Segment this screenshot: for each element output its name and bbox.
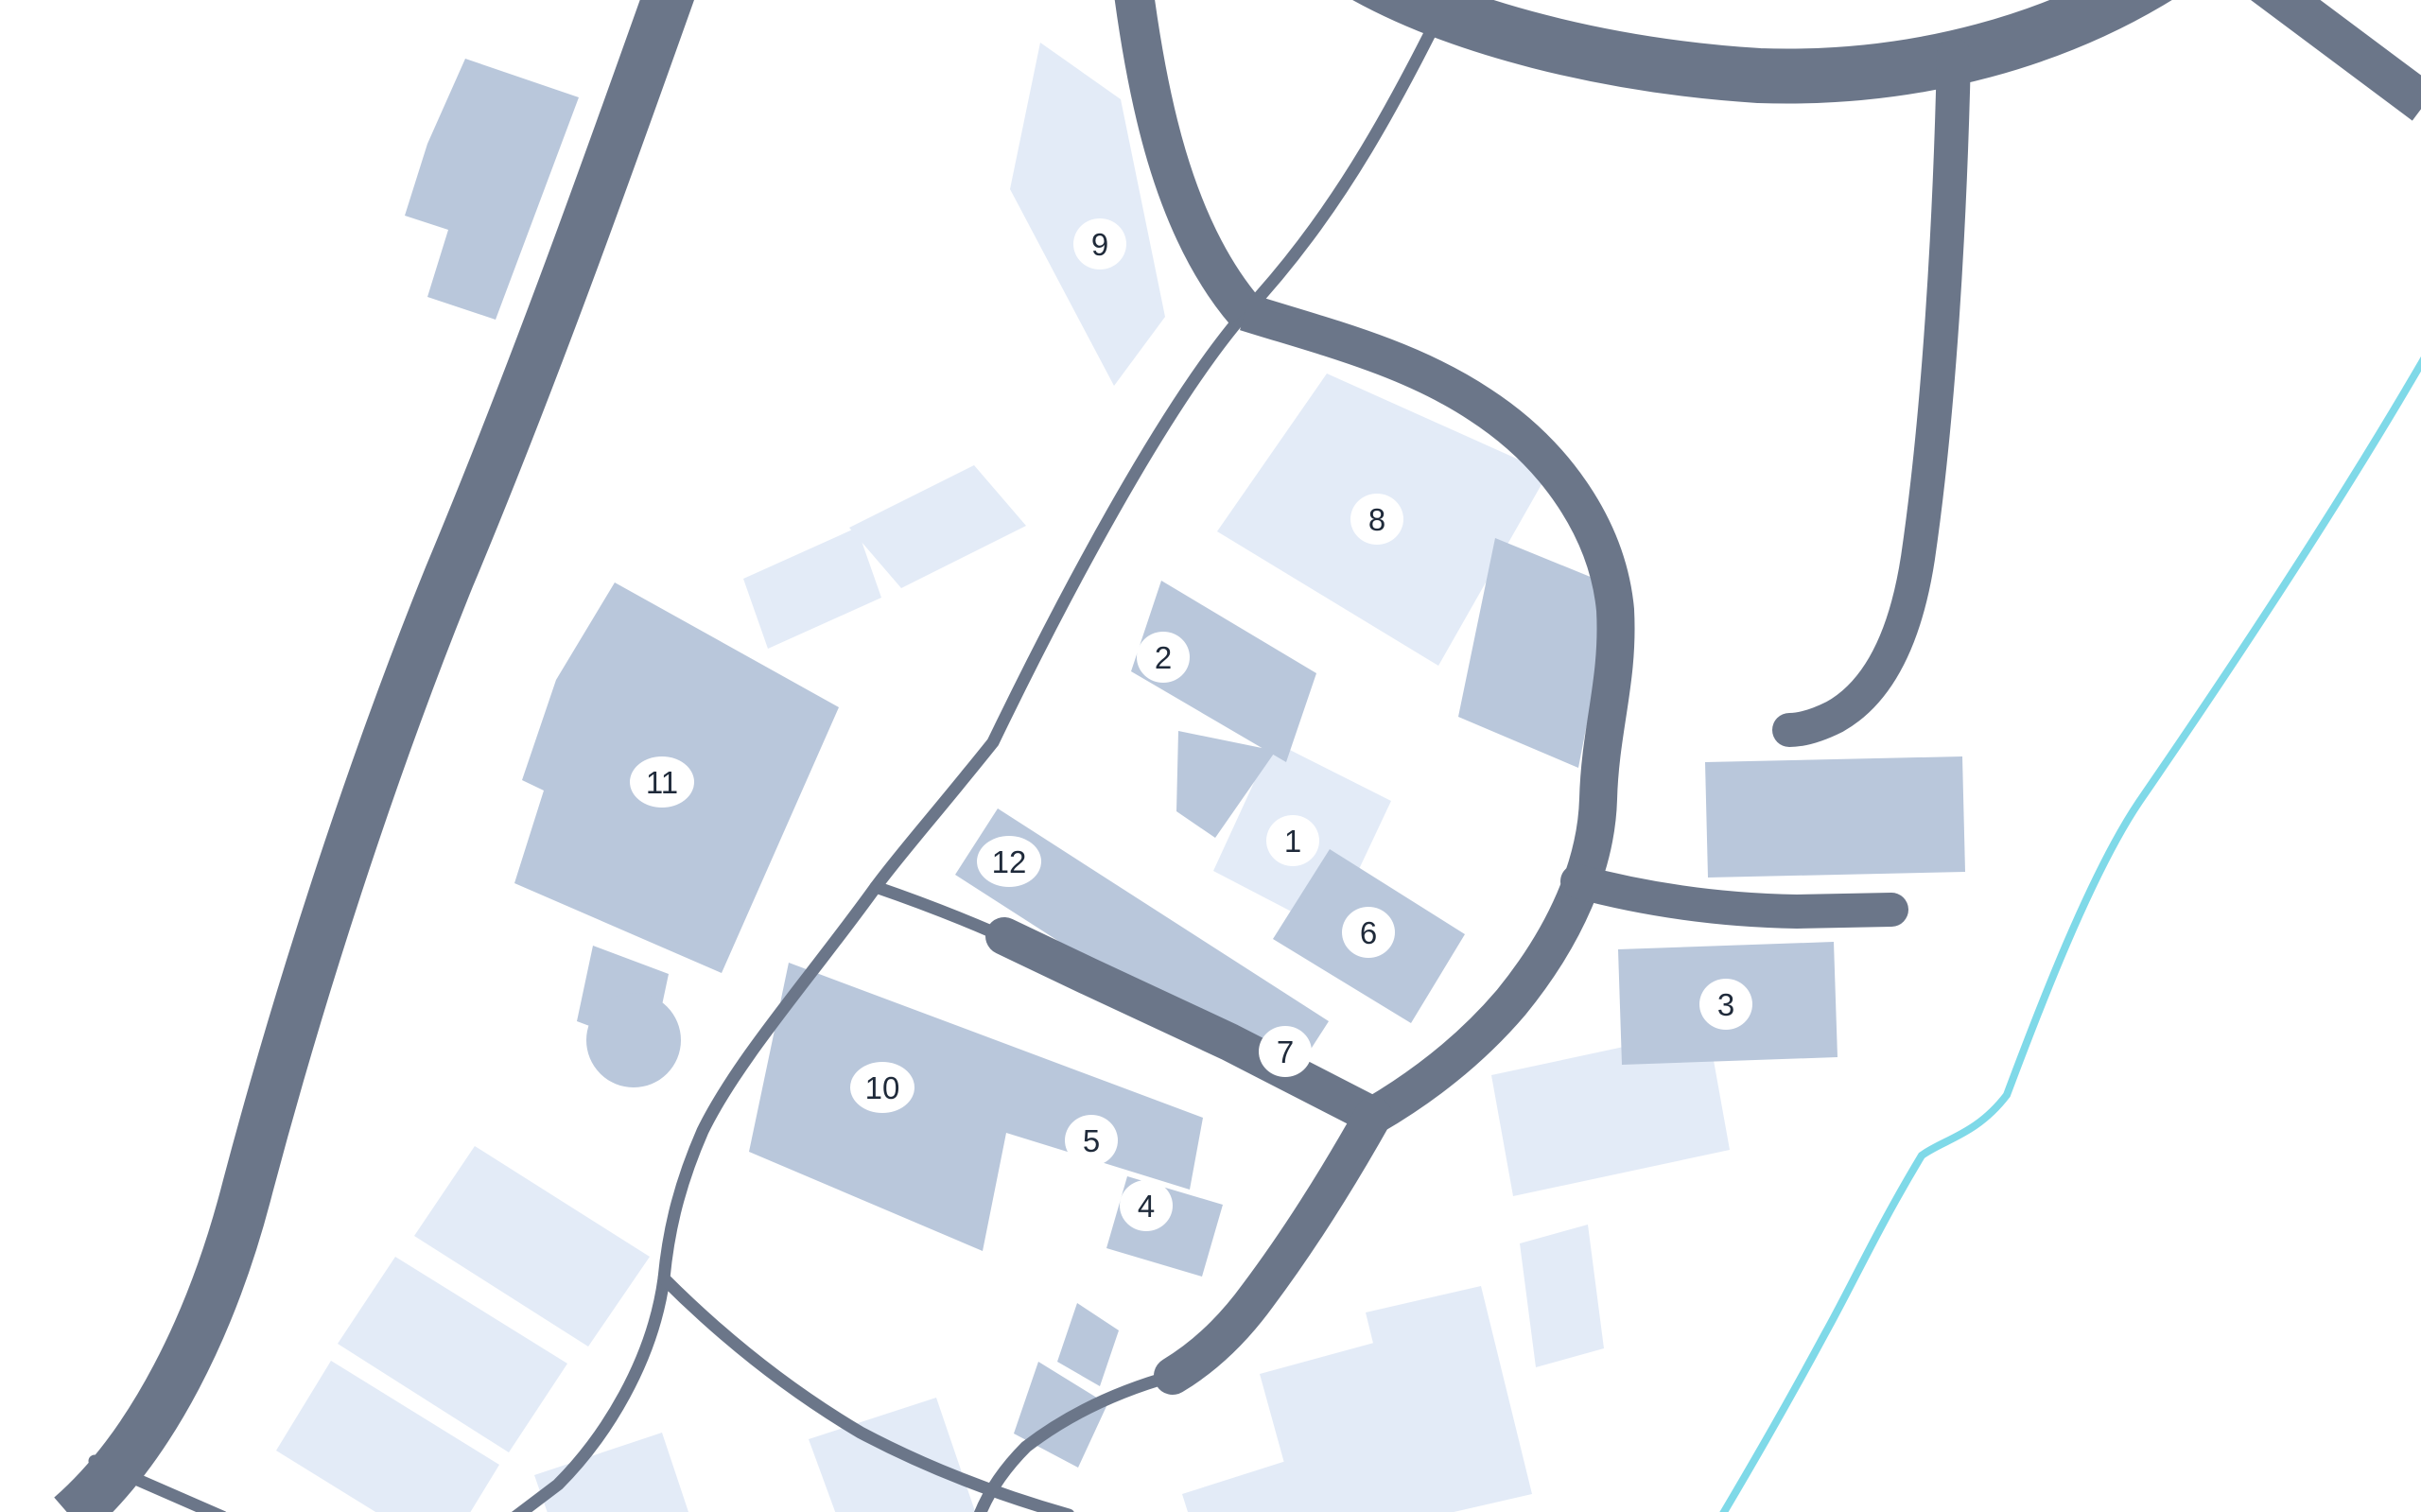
water-stream: [1721, 357, 2421, 1512]
marker-number: 12: [992, 844, 1027, 879]
building-11-rotunda: [586, 993, 681, 1087]
marker-number: 1: [1284, 824, 1301, 859]
road-north-arc: [1358, 0, 2166, 77]
map-marker-6[interactable]: 6: [1342, 907, 1395, 958]
marker-number: 4: [1138, 1189, 1155, 1224]
unlabeled-building-se-2: [1520, 1225, 1604, 1367]
map-canvas[interactable]: 123456789101112: [0, 0, 2421, 1512]
map-marker-9[interactable]: 9: [1073, 218, 1126, 269]
marker-number: 9: [1091, 227, 1108, 262]
map-marker-11[interactable]: 11: [630, 756, 694, 808]
map-marker-2[interactable]: 2: [1137, 632, 1190, 683]
map-marker-1[interactable]: 1: [1266, 815, 1319, 866]
map-marker-4[interactable]: 4: [1120, 1180, 1173, 1231]
map-marker-7[interactable]: 7: [1259, 1026, 1312, 1077]
map-marker-8[interactable]: 8: [1350, 494, 1403, 545]
map-marker-10[interactable]: 10: [850, 1062, 914, 1113]
marker-number: 5: [1083, 1123, 1100, 1158]
unlabeled-building-small-b: [743, 528, 881, 649]
map-marker-12[interactable]: 12: [977, 836, 1041, 887]
map-marker-5[interactable]: 5: [1065, 1115, 1118, 1166]
map-svg: 123456789101112: [0, 0, 2421, 1512]
marker-number: 7: [1277, 1034, 1294, 1069]
unlabeled-building-bottom-b: [534, 1433, 695, 1512]
marker-number: 2: [1155, 640, 1172, 675]
unlabeled-building-small-a: [849, 465, 1026, 588]
road-j-hook: [1789, 55, 1954, 730]
road-east-spur: [1577, 881, 1891, 912]
marker-number: 8: [1368, 502, 1385, 537]
marker-number: 10: [865, 1070, 900, 1105]
unlabeled-building-east-1: [1705, 756, 1965, 878]
unlabeled-building-south-1: [1057, 1303, 1119, 1386]
road-ne-corner: [2260, 0, 2421, 104]
marker-number: 6: [1360, 915, 1377, 950]
map-marker-3[interactable]: 3: [1699, 979, 1752, 1030]
marker-number: 3: [1717, 987, 1734, 1022]
road-minor-t-branch: [876, 887, 991, 931]
marker-number: 11: [646, 765, 678, 800]
